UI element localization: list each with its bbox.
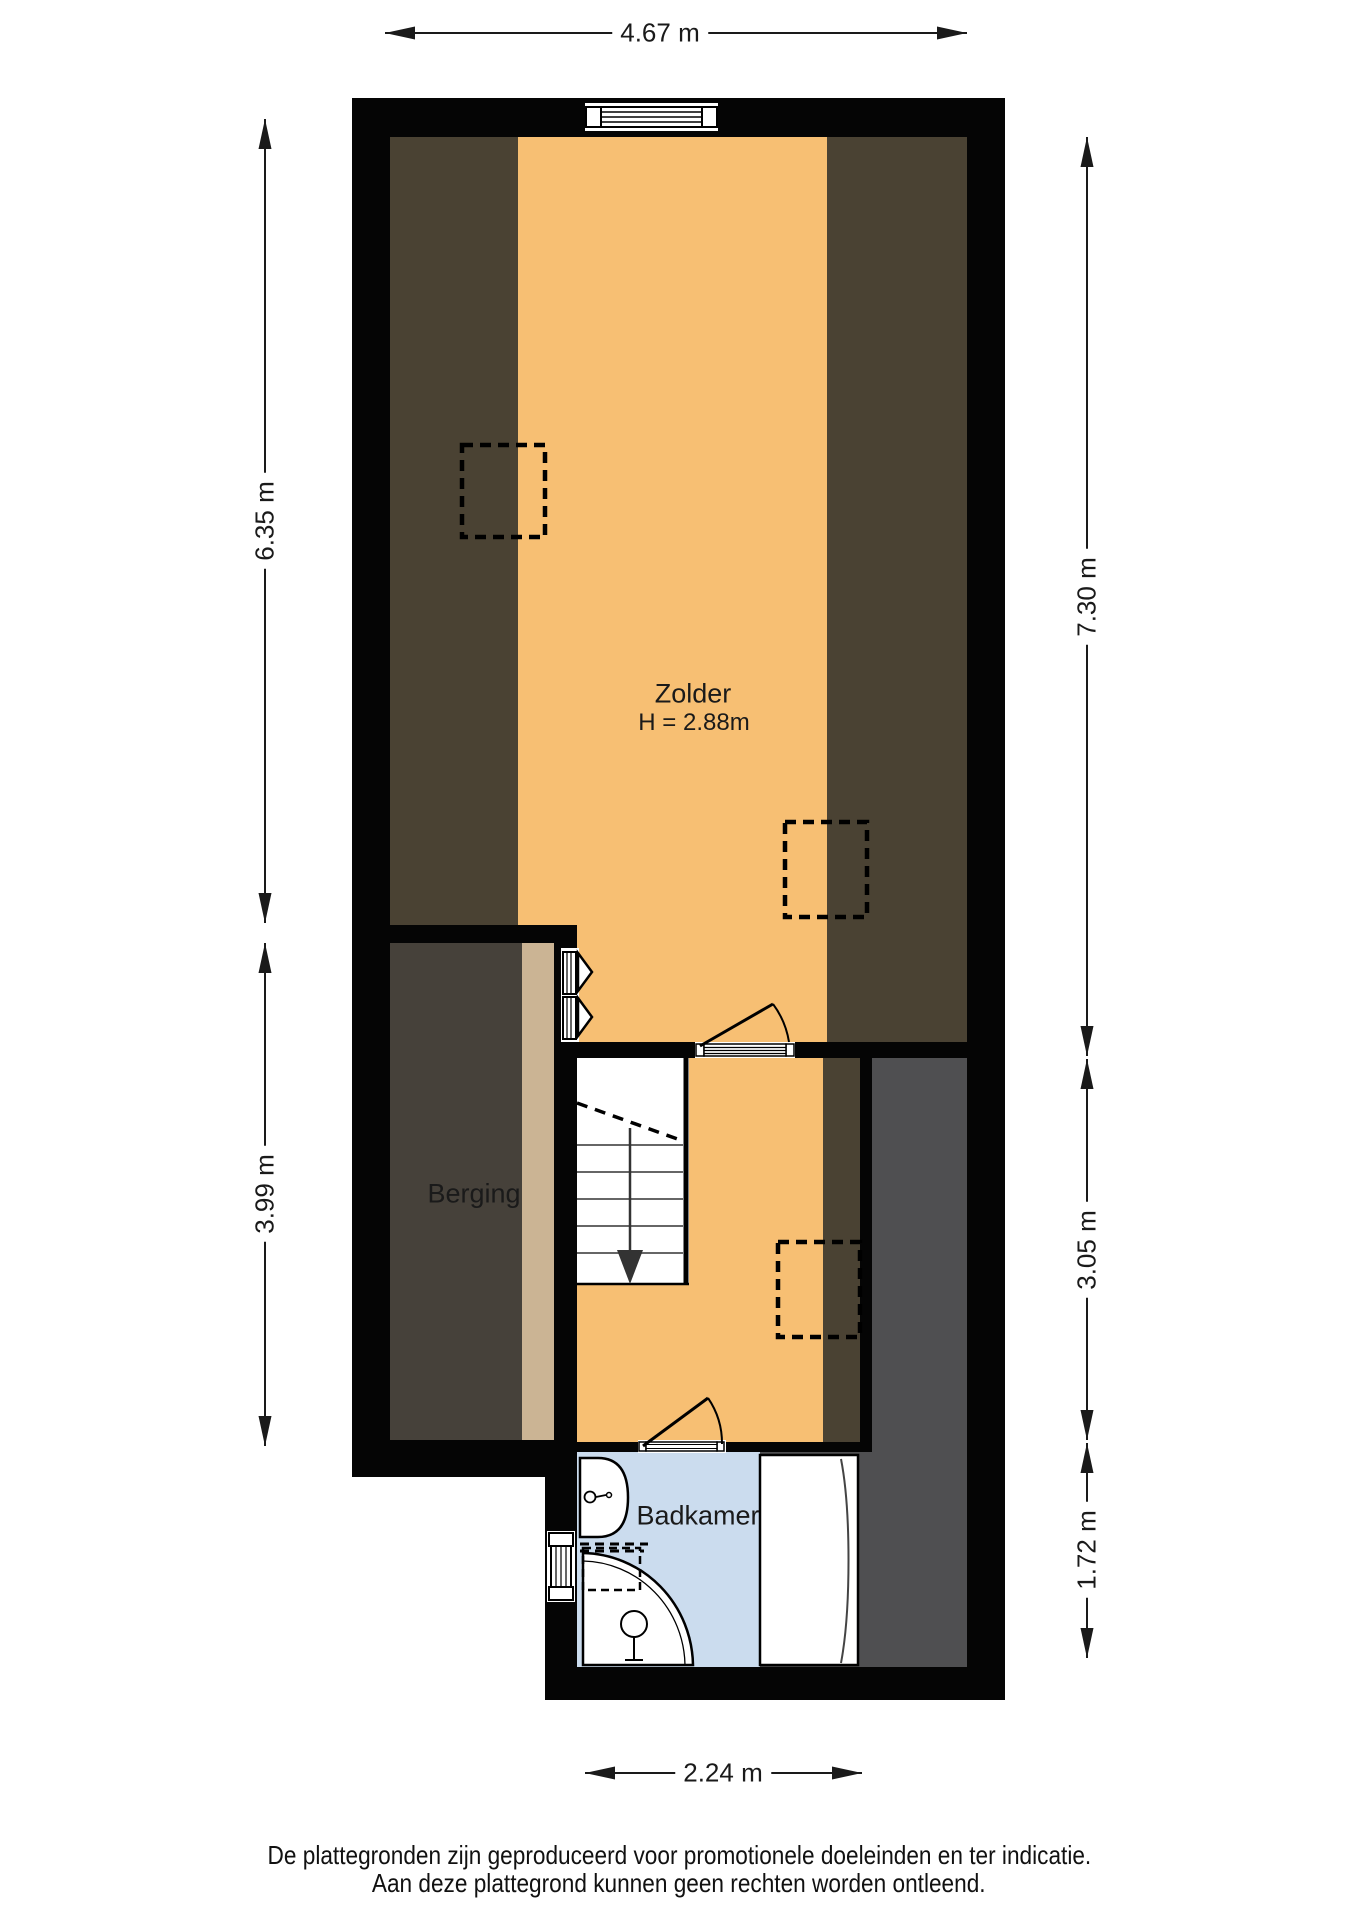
room-label-berging: Berging — [427, 1179, 520, 1210]
dim-right-lower: 1.72 m — [1071, 1502, 1104, 1598]
washbasin-icon — [580, 1458, 628, 1537]
dim-top: 4.67 m — [612, 17, 708, 50]
stairs-down-arrow-icon — [617, 1128, 643, 1284]
louvre-window-lower-icon — [563, 997, 592, 1039]
dashed-opening-middle — [785, 822, 867, 917]
dim-left-upper: 6.35 m — [249, 473, 282, 569]
staircase — [577, 1058, 689, 1284]
dim-left-lower: 3.99 m — [249, 1146, 282, 1242]
room-label-zolder: Zolder — [655, 679, 732, 710]
bathtub-icon — [760, 1455, 858, 1665]
disclaimer-line-2: Aan deze plattegrond kunnen geen rechten… — [0, 1868, 1358, 1899]
dashed-opening-upper — [462, 445, 545, 537]
window-top-icon — [585, 103, 718, 131]
dim-right-upper: 7.30 m — [1071, 549, 1104, 645]
room-height-zolder: H = 2.88m — [638, 709, 749, 737]
door-landing-icon — [695, 1004, 795, 1058]
room-label-badkamer: Badkamer — [636, 1501, 759, 1532]
door-badkamer-icon — [638, 1398, 726, 1453]
floorplan-canvas: 4.67 m 6.35 m 3.99 m 7.30 m 3.05 m 1.72 … — [0, 0, 1358, 1920]
dashed-opening-lower — [778, 1242, 860, 1337]
disclaimer-line-1: De plattegronden zijn geproduceerd voor … — [0, 1840, 1358, 1871]
dim-bottom: 2.24 m — [675, 1757, 771, 1790]
dim-right-middle: 3.05 m — [1071, 1202, 1104, 1298]
window-bathroom-icon — [547, 1531, 575, 1602]
shower-icon — [580, 1544, 693, 1665]
